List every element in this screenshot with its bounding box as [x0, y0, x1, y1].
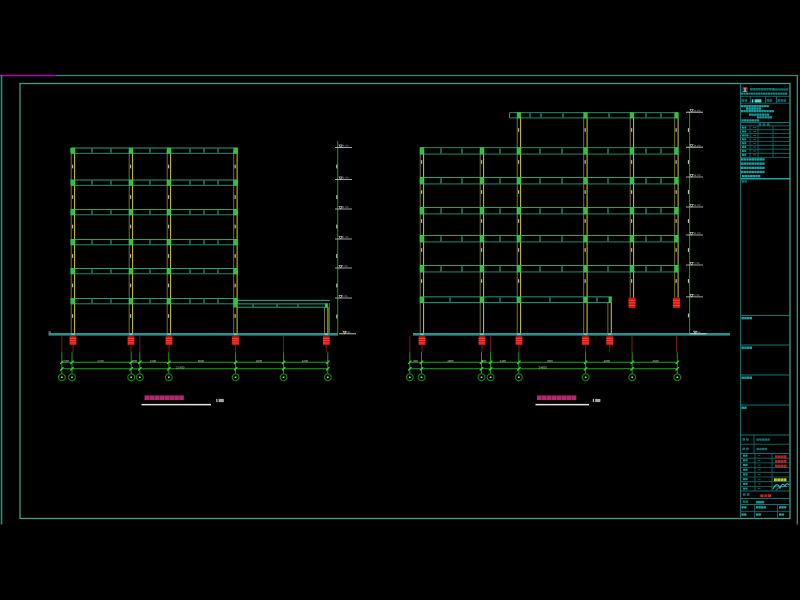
- svg-text:6000: 6000: [198, 359, 205, 363]
- svg-text:10.170: 10.170: [342, 236, 350, 239]
- svg-text:4500: 4500: [652, 359, 659, 363]
- svg-text:4.170: 4.170: [342, 295, 348, 298]
- svg-text:27900: 27900: [176, 366, 185, 370]
- svg-text:10.170: 10.170: [694, 232, 702, 235]
- svg-text:2100: 2100: [150, 359, 157, 363]
- svg-text:19.170: 19.170: [342, 145, 350, 148]
- svg-text:4200: 4200: [302, 359, 309, 363]
- svg-text:19.170: 19.170: [694, 144, 702, 147]
- svg-text:7.170: 7.170: [694, 262, 700, 265]
- svg-text:600: 600: [482, 359, 487, 363]
- svg-text:4800: 4800: [256, 359, 263, 363]
- svg-text:600: 600: [413, 359, 418, 363]
- svg-text:7000: 7000: [546, 359, 553, 363]
- svg-text:34800: 34800: [538, 366, 547, 370]
- svg-text:16.170: 16.170: [694, 174, 702, 177]
- svg-text:5700: 5700: [97, 359, 104, 363]
- svg-text:600: 600: [132, 359, 137, 363]
- svg-text:-0.030: -0.030: [694, 331, 701, 334]
- svg-text:13.170: 13.170: [342, 206, 350, 209]
- svg-text:600: 600: [64, 359, 69, 363]
- svg-text:13.170: 13.170: [694, 204, 702, 207]
- svg-text:4800: 4800: [604, 359, 611, 363]
- svg-text:7.170: 7.170: [342, 265, 348, 268]
- svg-text:4.170: 4.170: [694, 294, 700, 297]
- svg-text:16.170: 16.170: [342, 177, 350, 180]
- svg-text:22.170: 22.170: [694, 109, 702, 112]
- svg-text:2400: 2400: [500, 359, 507, 363]
- svg-text:4800: 4800: [447, 359, 454, 363]
- svg-text:-0.030: -0.030: [344, 331, 351, 334]
